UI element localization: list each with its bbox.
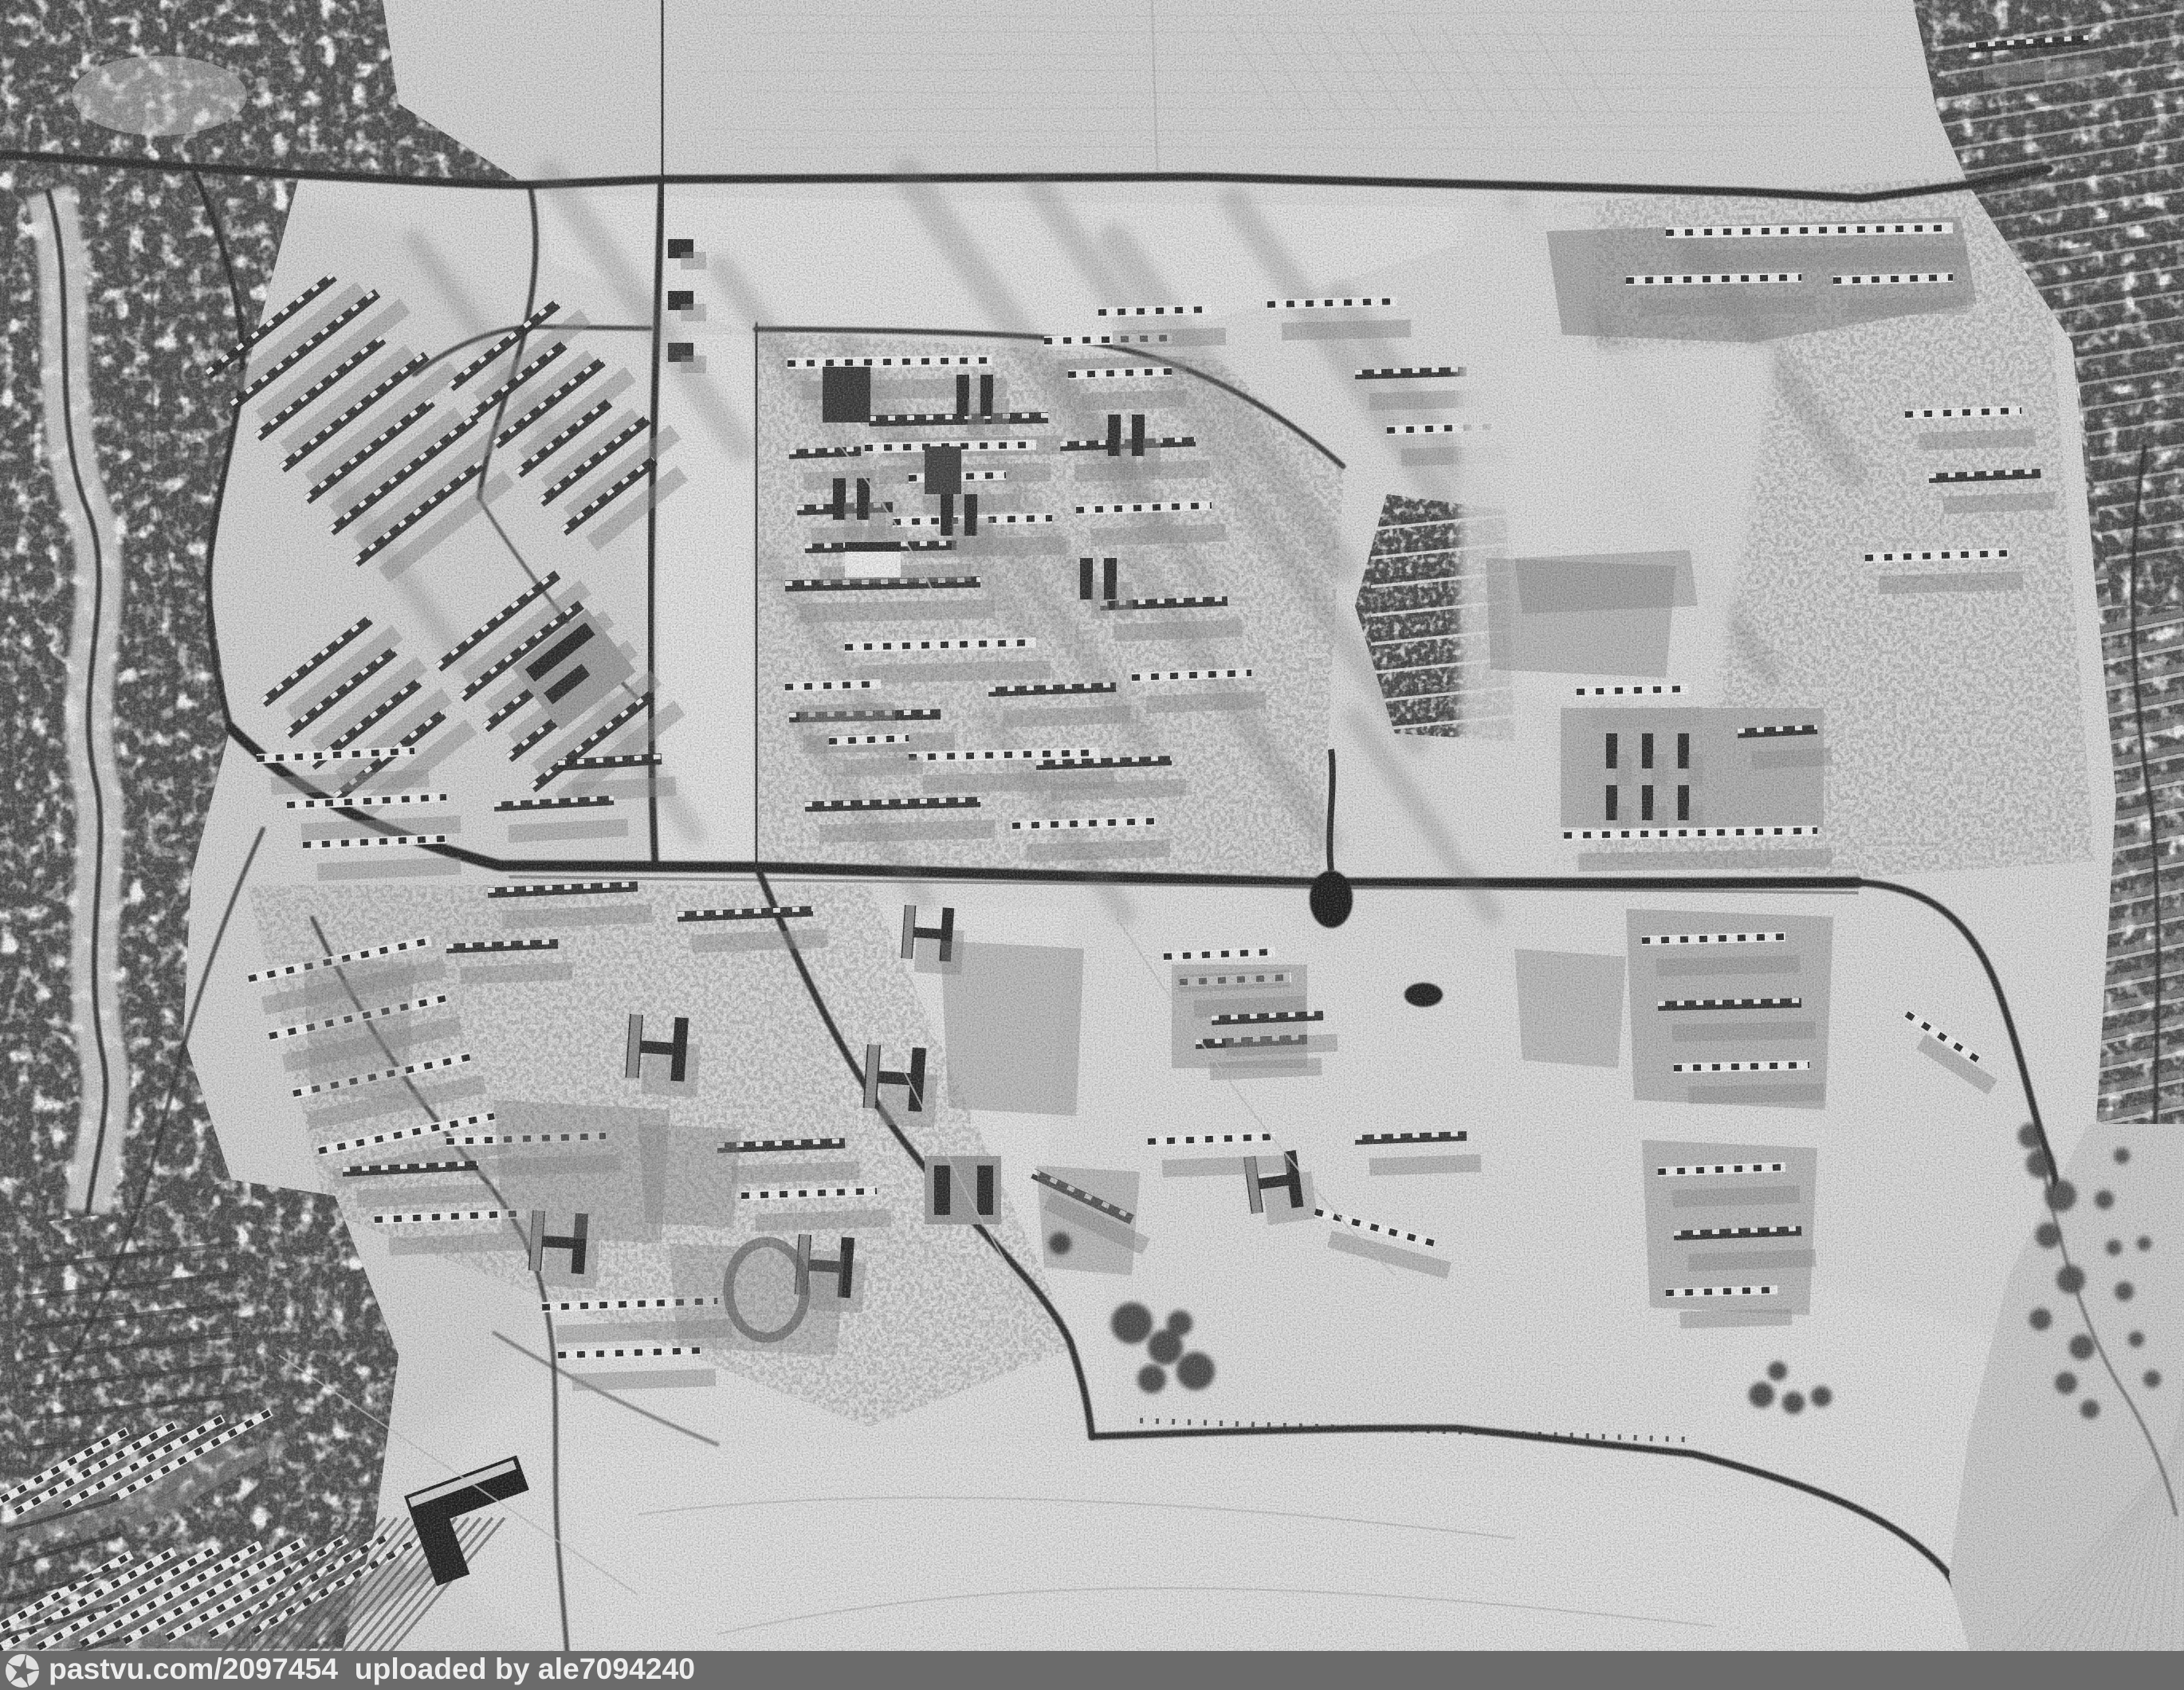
svg-text:pastvu.com/2097454 uploaded b: pastvu.com/2097454 uploaded by ale709424…: [49, 1653, 695, 1685]
